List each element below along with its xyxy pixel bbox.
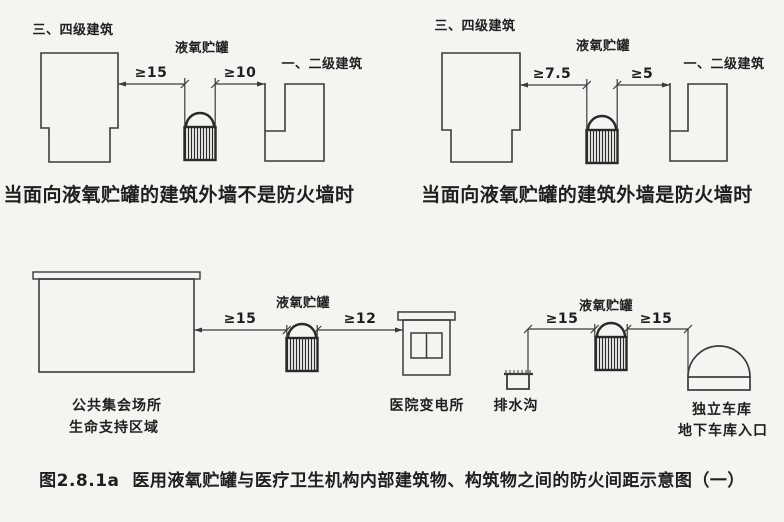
assembly-building-label-line2: 生命支持区域 [69,420,159,436]
dimension-label: ≥15 [546,311,579,327]
tank-label: 液氧贮罐 [276,297,330,312]
dimension-label: ≥5 [631,66,653,82]
building-class34-outline [442,53,520,162]
tank-label: 液氧贮罐 [175,42,229,57]
lox-tank-icon [596,323,627,370]
assembly-building-label-line1: 公共集会场所 [72,398,162,414]
building-class12-label: 一、二级建筑 [683,58,764,73]
diagram-bottom-right [504,323,750,390]
diagram-caption: 当面向液氧贮罐的建筑外墙是防火墙时 [421,185,753,207]
dimension-label: ≥7.5 [533,66,572,82]
substation-icon [398,312,455,375]
ditch-label: 排水沟 [494,398,539,414]
dimension-arrow [194,328,202,333]
dimension-label: ≥15 [135,65,168,81]
dimension-arrow [118,82,126,87]
garage-icon [688,346,750,390]
diagram-caption: 当面向液氧贮罐的建筑外墙不是防火墙时 [3,185,354,207]
building-class34-outline [41,53,118,162]
building-class12-outline [670,83,727,161]
dimension-arrow [257,82,265,87]
building-class34-label: 三、四级建筑 [32,24,113,39]
assembly-building-roof [33,272,200,279]
dimension-arrow [520,83,528,88]
assembly-building-outline [39,279,194,372]
lox-tank-icon [287,324,318,371]
tank-label: 液氧贮罐 [576,40,630,55]
tank-label: 液氧贮罐 [579,300,633,315]
dimension-arrow [395,328,403,333]
dimension-label: ≥12 [344,311,377,327]
diagram-linework [0,0,784,522]
building-class12-outline [265,83,324,161]
building-class34-label: 三、四级建筑 [434,20,515,35]
dimension-label: ≥15 [640,311,673,327]
lox-tank-icon [185,113,216,160]
dimension-arrow [662,83,670,88]
figure-caption: 图2.8.1a 医用液氧贮罐与医疗卫生机构内部建筑物、构筑物之间的防火间距示意图… [39,472,745,492]
ditch-garage-label-line2: 地下车库入口 [678,423,768,439]
lox-tank-icon [587,116,618,163]
dimension-label: ≥15 [224,311,257,327]
substation-label: 医院变电所 [390,398,465,414]
ditch-icon [504,370,533,389]
dimension-label: ≥10 [224,65,257,81]
ditch-garage-label-line1: 独立车库 [692,402,752,418]
figure-canvas: 三、四级建筑 液氧贮罐 一、二级建筑 ≥15 ≥10 当面向液氧贮罐的建筑外墙不… [0,0,784,522]
building-class12-label: 一、二级建筑 [281,58,362,73]
